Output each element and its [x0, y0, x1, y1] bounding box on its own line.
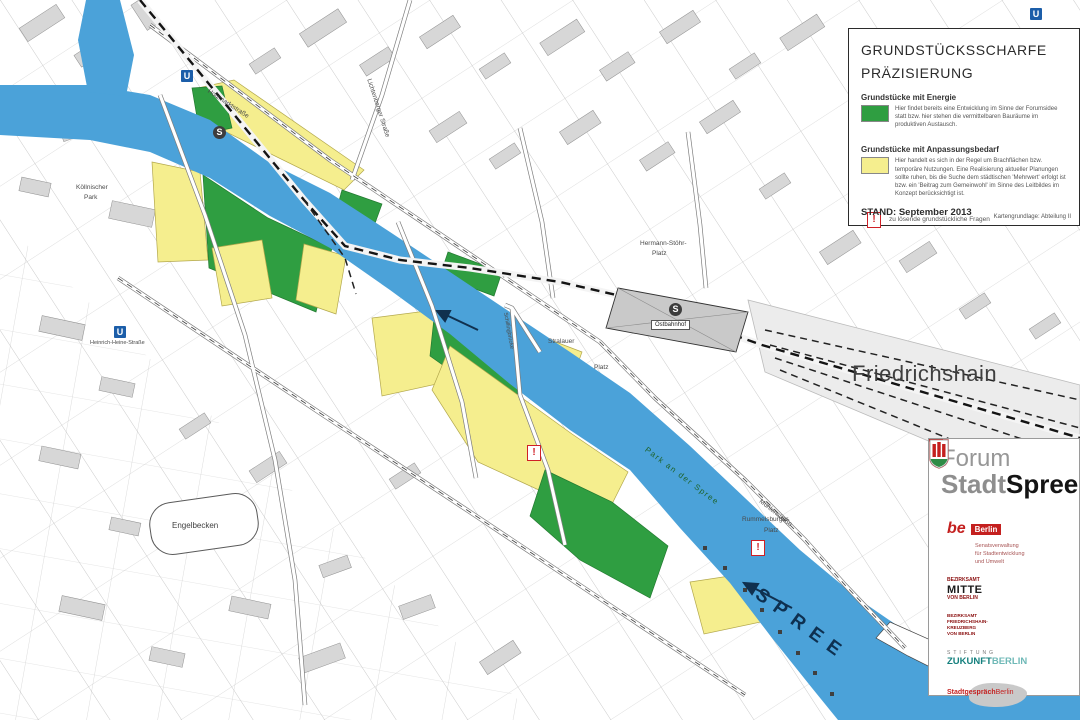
forum-title-spree: Spree	[1006, 469, 1078, 499]
legend-box: GRUNDSTÜCKSSCHARFE PRÄZISIERUNG Grundstü…	[848, 28, 1080, 226]
ubahn-icon: U	[181, 70, 193, 82]
forum-title: Forum	[941, 447, 1071, 471]
sbahn-icon: S	[669, 303, 682, 316]
district-label: Friedrichshain	[852, 362, 997, 386]
be-berlin-wordmark: be	[947, 520, 966, 538]
stiftung-zukunft-berlin-logo: STIFTUNG ZUKUNFTBERLIN	[947, 650, 1071, 667]
alert-marker: !	[751, 540, 765, 556]
stadtgespraech-berlin-logo: StadtgesprächBerlin	[947, 681, 1071, 707]
stralauer-platz-label-1: Stralauer	[548, 338, 574, 345]
yellow-swatch	[861, 157, 889, 174]
stadtgespraech-word: Stadtgespräch	[947, 689, 996, 696]
legend-adaptation-text: Hier handelt es sich in der Regel um Bra…	[895, 157, 1069, 197]
koellnischer-park-label-2: Park	[84, 194, 97, 201]
senate-caption-line3: und Umwelt	[975, 559, 1071, 567]
engelbecken-label: Engelbecken	[172, 522, 218, 531]
forum-title-stadt: Stadt	[941, 469, 1006, 499]
bezirksamt-mitte-logo: BEZIRKSAMT MITTE VON BERLIN	[947, 578, 1071, 601]
green-swatch	[861, 105, 889, 122]
senate-department-caption: Senatsverwaltung für Stadtentwicklung un…	[975, 543, 1071, 566]
legend-energy-heading: Grundstücke mit Energie	[861, 93, 1069, 102]
stiftung-zukunft: ZUKUNFT	[947, 656, 992, 667]
be-berlin-logo: be Berlin	[947, 520, 1071, 538]
koellnischer-park-label-1: Köllnischer	[76, 184, 108, 191]
legend-energy-text: Hier findet bereits eine Entwicklung im …	[895, 105, 1069, 129]
legend-adaptation-heading: Grundstücke mit Anpassungsbedarf	[861, 145, 1069, 154]
senate-caption-line1: Senatsverwaltung	[975, 543, 1071, 551]
stralauer-platz-label-2: Platz	[594, 364, 608, 371]
friedrichshain-kreuzberg-coat-of-arms-icon	[929, 439, 949, 469]
city-plan-map: Friedrichshain SPREE Park an der Spree H…	[0, 0, 1080, 720]
ostbahnhof-station-label: Ostbahnhof	[651, 320, 690, 330]
mitte-line3: VON BERLIN	[947, 596, 983, 602]
hermann-stoehr-platz-label-2: Platz	[652, 250, 666, 257]
rummelsburger-platz-label-2: Platz	[764, 527, 778, 534]
ubahn-icon: U	[1030, 8, 1042, 20]
alert-marker: !	[527, 445, 541, 461]
stiftung-berlin: BERLIN	[992, 656, 1027, 667]
legend-map-source: Kartengrundlage: Abteilung II	[994, 214, 1071, 220]
fk-line4: VON BERLIN	[947, 631, 988, 637]
heinrich-heine-strasse-label: Heinrich-Heine-Straße	[90, 340, 145, 346]
hermann-stoehr-platz-label-1: Hermann-Stöhr-	[640, 240, 687, 247]
legend-title-line2: PRÄZISIERUNG	[861, 62, 1069, 85]
berlin-wordmark: Berlin	[971, 524, 1002, 535]
forum-stadtspree-box: Forum StadtSpree be Berlin Senatsverwalt…	[928, 438, 1080, 696]
senate-caption-line2: für Stadtentwicklung	[975, 551, 1071, 559]
legend-title-line1: GRUNDSTÜCKSSCHARFE	[861, 39, 1069, 62]
ubahn-icon: U	[114, 326, 126, 338]
stadtgespraech-berlin-word: Berlin	[996, 689, 1014, 696]
sbahn-icon: S	[213, 126, 226, 139]
bezirksamt-friedrichshain-kreuzberg-logo: BEZIRKSAMT FRIEDRICHSHAIN- KREUZBERG VON…	[947, 613, 1071, 636]
legend-date-stand: STAND: September 2013	[861, 207, 972, 218]
